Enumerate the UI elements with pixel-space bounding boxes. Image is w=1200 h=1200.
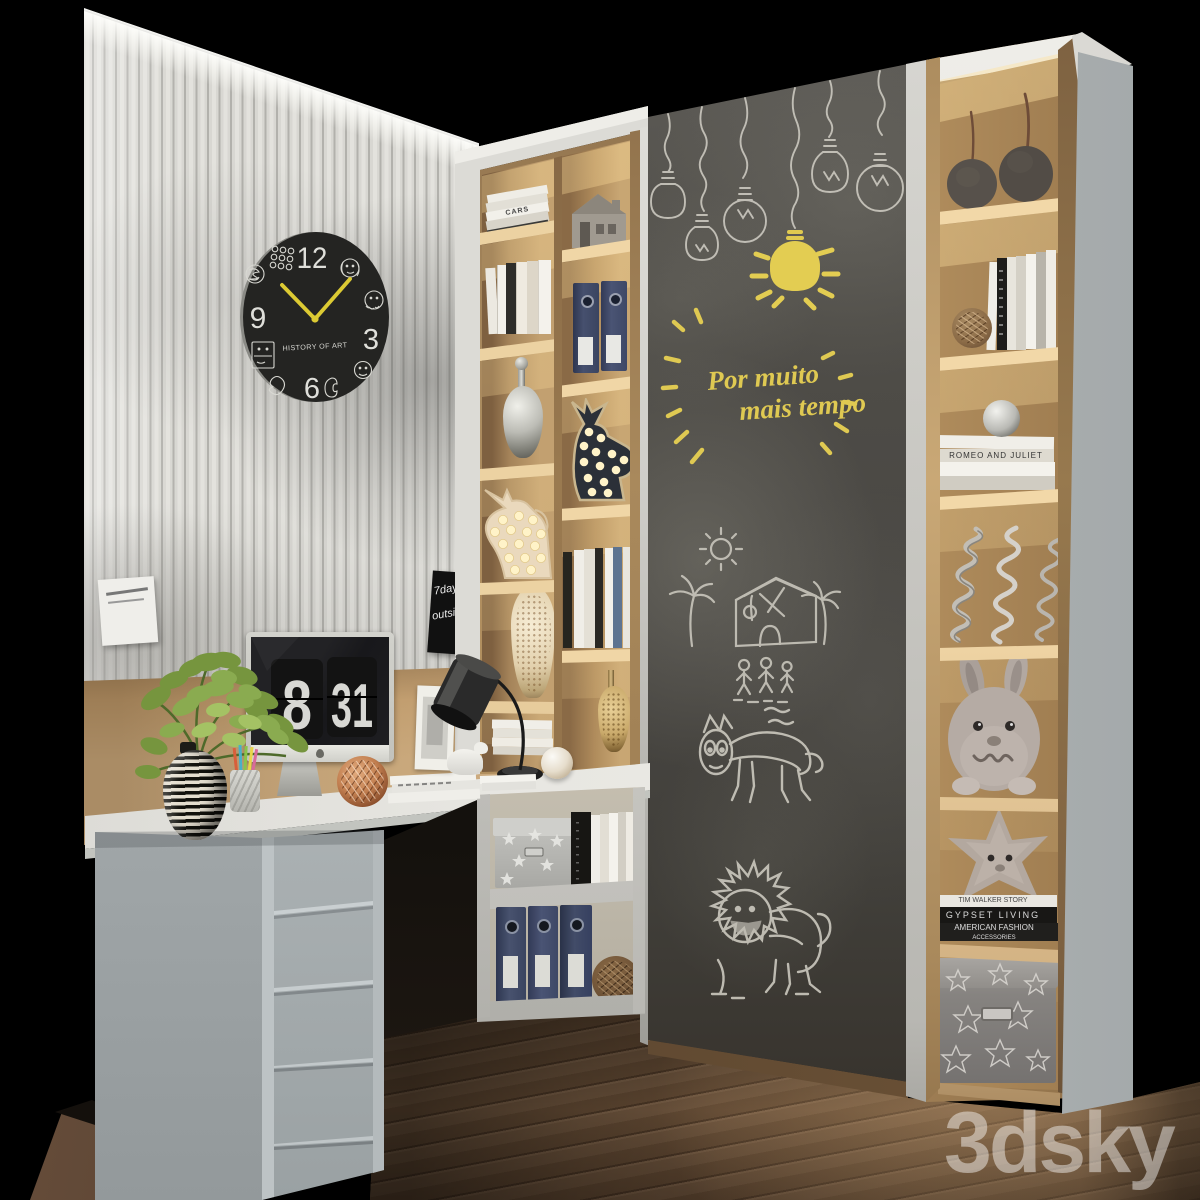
svg-text:9: 9 <box>250 302 267 335</box>
svg-text:6: 6 <box>304 373 320 405</box>
svg-text:mais tempo: mais tempo <box>738 387 867 426</box>
svg-text:3: 3 <box>363 324 379 356</box>
svg-text:Por muito: Por muito <box>705 358 820 396</box>
svg-text:12: 12 <box>297 242 328 275</box>
